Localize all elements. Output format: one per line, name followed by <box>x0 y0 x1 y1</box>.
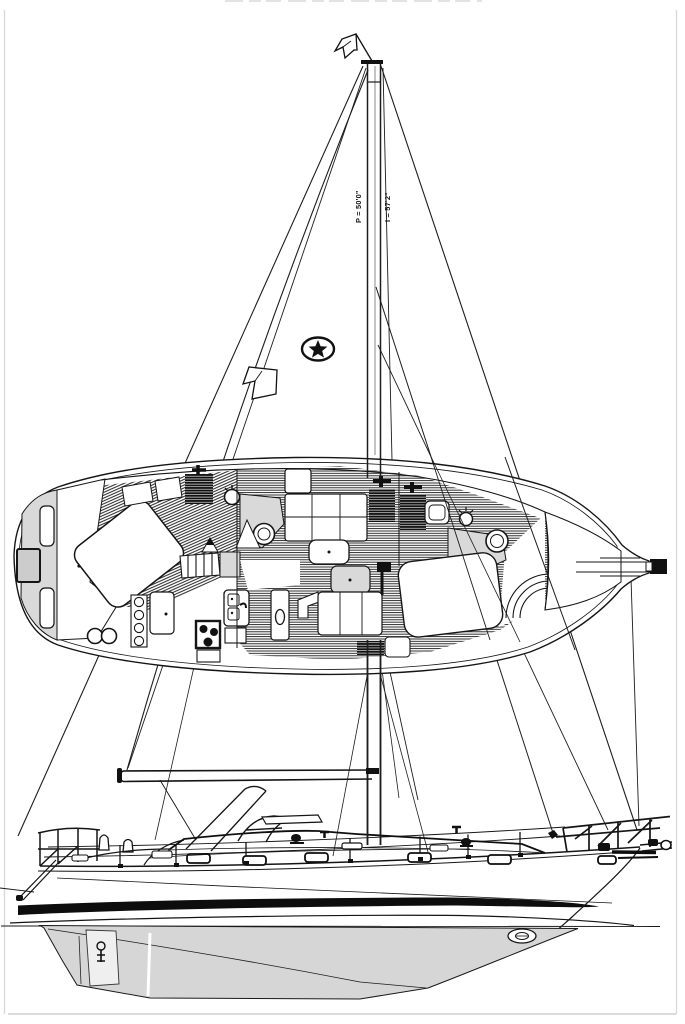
svg-text:P = 50'0": P = 50'0" <box>354 190 363 223</box>
svg-text:I = 57'2": I = 57'2" <box>383 192 392 222</box>
